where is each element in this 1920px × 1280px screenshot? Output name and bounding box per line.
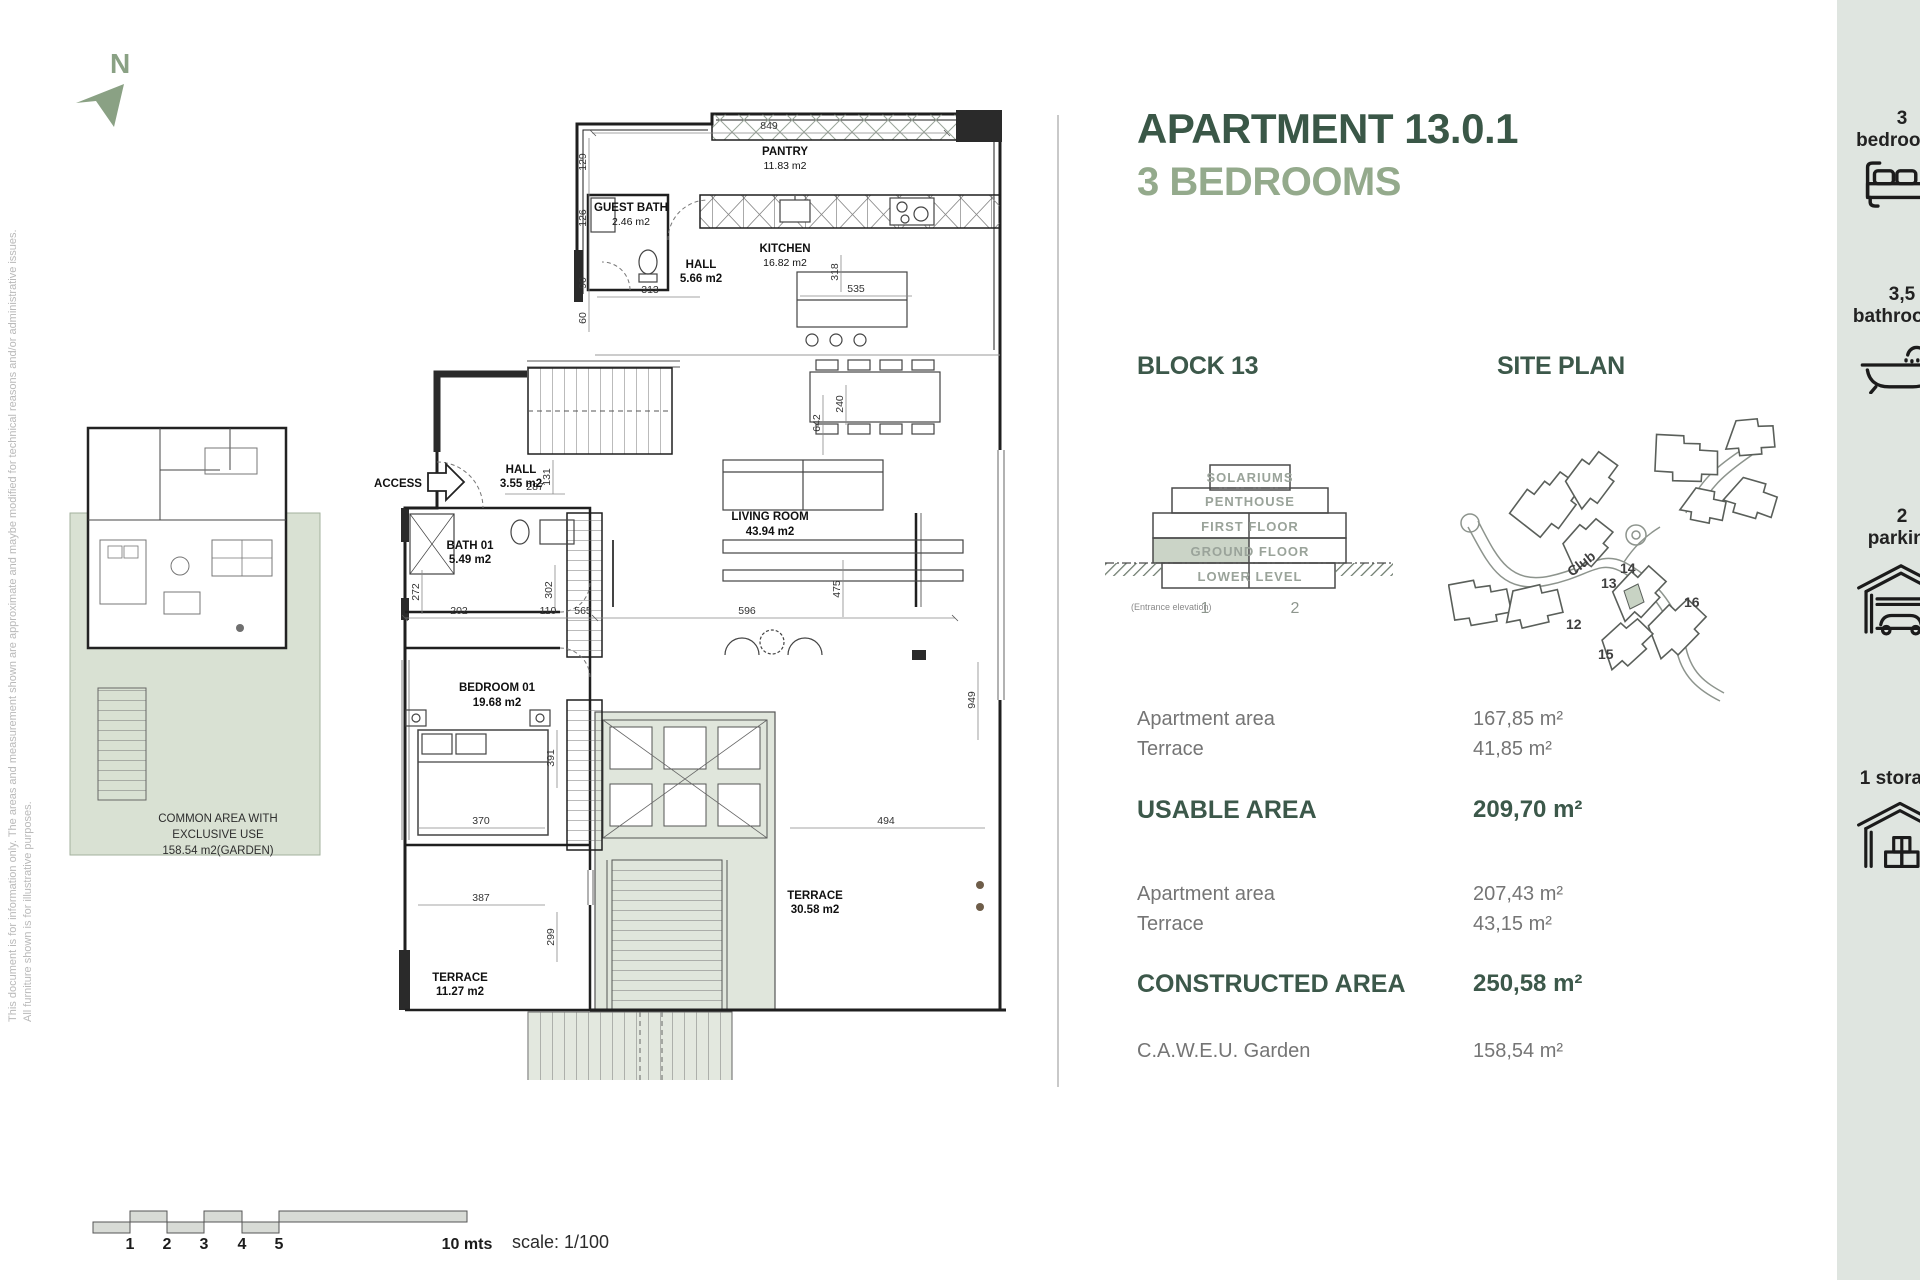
amenity-parking: 2 parking	[1837, 506, 1920, 550]
site-label-14: 14	[1620, 560, 1636, 576]
room-name: TERRACE	[432, 972, 488, 984]
common-area-caption-1: COMMON AREA WITH	[158, 813, 277, 825]
brochure-page: This document is for information only. T…	[0, 0, 1920, 1280]
amenity-label: bedrooms	[1837, 130, 1920, 152]
floor-label-ground: GROUND FLOOR	[1191, 544, 1310, 559]
usable-row-apartment: Apartment area 167,85 m²	[1137, 708, 1697, 738]
room-area: 3.55 m2	[500, 478, 542, 490]
room-name: GUEST BATH	[594, 202, 668, 214]
room-name: HALL	[506, 464, 537, 476]
floor-label-first: FIRST FLOOR	[1201, 519, 1299, 534]
row-label: Apartment area	[1137, 883, 1275, 905]
dim-label: 129	[577, 153, 589, 171]
common-area-caption-2: EXCLUSIVE USE	[172, 829, 264, 841]
dim-label: 849	[760, 120, 778, 132]
room-name: PANTRY	[762, 146, 808, 158]
floor-label-lower: LOWER LEVEL	[1198, 569, 1303, 584]
total-label: CONSTRUCTED AREA	[1137, 970, 1406, 998]
site-label-16: 16	[1684, 594, 1700, 610]
amenity-count: 3	[1837, 108, 1920, 130]
garden-row: C.A.W.E.U. Garden 158,54 m²	[1137, 1040, 1697, 1070]
room-area: 11.83 m2	[764, 160, 807, 172]
row-label: Apartment area	[1137, 708, 1275, 730]
row-value: 41,85 m²	[1473, 738, 1552, 761]
amenities-sidebar: 3 bedrooms 3,5 bathrooms 2 parking	[1837, 0, 1920, 1280]
common-area-plan: COMMON AREA WITH EXCLUSIVE USE 158.54 m2…	[70, 428, 320, 857]
room-name: BEDROOM 01	[459, 682, 536, 694]
common-area-caption-3: 158.54 m2(GARDEN)	[162, 845, 273, 857]
room-area: 11.27 m2	[436, 986, 484, 998]
usable-total-row: USABLE AREA 209,70 m²	[1137, 796, 1697, 826]
amenity-label: parking	[1837, 528, 1920, 550]
parking-icon	[1855, 558, 1920, 638]
disclaimer-line-1: This document is for information only. T…	[6, 12, 21, 1022]
block-elevation-diagram: SOLARIUMS PENTHOUSE FIRST FLOOR GROUND F…	[1105, 455, 1395, 625]
total-value: 250,58 m²	[1473, 970, 1582, 998]
dim-label: 90	[577, 277, 589, 289]
room-area: 2.46 m2	[612, 216, 650, 228]
dim-label: 60	[577, 312, 589, 324]
dim-label: 240	[834, 395, 846, 413]
row-value: 207,43 m²	[1473, 883, 1563, 906]
room-name: HALL	[686, 259, 717, 271]
amenity-count: 1 storage	[1837, 768, 1920, 790]
dim-label: 299	[545, 928, 557, 946]
row-label: Terrace	[1137, 738, 1204, 760]
row-value: 43,15 m²	[1473, 913, 1552, 936]
room-name: KITCHEN	[759, 243, 810, 255]
row-value: 167,85 m²	[1473, 708, 1563, 731]
access-arrow-icon	[428, 464, 464, 500]
dim-label: 302	[543, 581, 555, 599]
room-area: 16.82 m2	[763, 257, 807, 269]
dim-label: 387	[472, 892, 490, 904]
unit-number-2: 2	[1291, 600, 1300, 617]
terrace-areas	[528, 712, 775, 1080]
page-subtitle: 3 BEDROOMS	[1137, 160, 1401, 205]
room-area: 5.66 m2	[680, 273, 722, 285]
usable-row-terrace: Terrace 41,85 m²	[1137, 738, 1697, 768]
dim-label: 272	[410, 583, 422, 601]
row-label: C.A.W.E.U. Garden	[1137, 1040, 1310, 1062]
room-area: 43.94 m2	[746, 526, 795, 538]
scale-tick-5: 5	[275, 1236, 284, 1253]
scale-end-label: 10 mts	[442, 1236, 493, 1253]
dim-label: 475	[831, 580, 843, 598]
dim-label: 318	[829, 263, 841, 281]
elevation-caption: (Entrance elevation)	[1131, 602, 1212, 612]
site-plan-heading: SITE PLAN	[1497, 352, 1625, 381]
site-label-15: 15	[1598, 646, 1614, 662]
dim-label: 535	[847, 283, 865, 295]
dim-label: 494	[877, 815, 895, 827]
north-label: N	[110, 48, 130, 79]
scale-ratio-label: scale: 1/100	[512, 1232, 609, 1253]
dim-label: 131	[541, 468, 553, 486]
amenity-count: 3,5	[1837, 284, 1920, 306]
dim-label: 370	[472, 815, 490, 827]
scale-tick-2: 2	[163, 1236, 172, 1253]
constructed-row-terrace: Terrace 43,15 m²	[1137, 913, 1697, 943]
site-label-13: 13	[1601, 575, 1617, 591]
scale-tick-1: 1	[126, 1236, 135, 1253]
storage-icon	[1855, 796, 1920, 872]
disclaimer-line-2: All furniture shown is for illustrative …	[21, 12, 36, 1022]
dim-label: 565	[574, 605, 592, 617]
disclaimer-text: This document is for information only. T…	[6, 12, 36, 1022]
room-area: 19.68 m2	[473, 697, 522, 709]
site-label-12: 12	[1566, 616, 1582, 632]
bed-icon	[1859, 160, 1920, 216]
amenity-label: bathrooms	[1837, 306, 1920, 328]
amenity-count: 2	[1837, 506, 1920, 528]
site-plan-map: Club 12 13 14 15 16	[1448, 385, 1798, 705]
access-label: ACCESS	[374, 478, 422, 490]
bath-icon	[1859, 336, 1920, 394]
room-name: TERRACE	[787, 890, 843, 902]
access-marker: ACCESS	[374, 464, 464, 500]
room-area: 30.58 m2	[791, 904, 840, 916]
amenity-storage: 1 storage	[1837, 768, 1920, 790]
amenity-bathrooms: 3,5 bathrooms	[1837, 284, 1920, 328]
dim-label: 596	[738, 605, 756, 617]
amenity-bedrooms: 3 bedrooms	[1837, 108, 1920, 152]
dim-label: 391	[545, 749, 557, 767]
constructed-total-row: CONSTRUCTED AREA 250,58 m²	[1137, 970, 1697, 1000]
vertical-divider	[1057, 115, 1059, 1087]
total-value: 209,70 m²	[1473, 796, 1582, 824]
floor-plan: COMMON AREA WITH EXCLUSIVE USE 158.54 m2…	[50, 80, 1060, 1080]
scale-tick-4: 4	[238, 1236, 247, 1253]
scale-tick-3: 3	[200, 1236, 209, 1253]
floor-label-solariums: SOLARIUMS	[1207, 470, 1294, 485]
block-heading: BLOCK 13	[1137, 352, 1258, 381]
dim-label: 202	[450, 605, 468, 617]
dim-label: 313	[641, 284, 659, 296]
floor-label-penthouse: PENTHOUSE	[1205, 494, 1295, 509]
row-label: Terrace	[1137, 913, 1204, 935]
dim-label: 126	[577, 209, 589, 227]
room-name: BATH 01	[446, 540, 494, 552]
page-title: APARTMENT 13.0.1	[1137, 105, 1518, 153]
dim-label: 642	[811, 414, 823, 432]
room-area: 5.49 m2	[449, 554, 491, 566]
room-name: LIVING ROOM	[731, 511, 808, 523]
dim-label: 110	[540, 605, 557, 617]
dim-label: 949	[966, 691, 978, 709]
total-label: USABLE AREA	[1137, 796, 1317, 824]
constructed-row-apartment: Apartment area 207,43 m²	[1137, 883, 1697, 913]
row-value: 158,54 m²	[1473, 1040, 1563, 1063]
